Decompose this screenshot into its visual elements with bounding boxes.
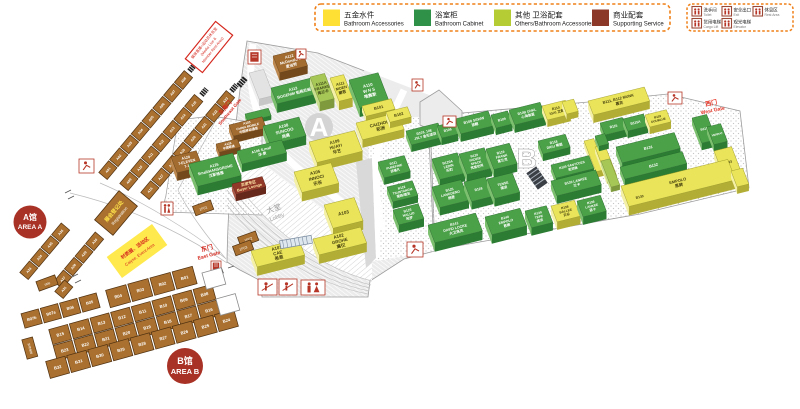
svg-text:A: A xyxy=(310,112,329,142)
svg-text:Cargo Lift: Cargo Lift xyxy=(704,25,719,29)
svg-text:Bathroom Accessories: Bathroom Accessories xyxy=(344,22,404,28)
svg-text:Bathroom Cabinet: Bathroom Cabinet xyxy=(435,22,484,28)
svg-text:AREA B: AREA B xyxy=(171,367,200,376)
svg-text:Others/Bathroom Accessories: Others/Bathroom Accessories xyxy=(515,22,594,28)
svg-text:商业配套: 商业配套 xyxy=(613,10,644,20)
svg-text:B馆: B馆 xyxy=(177,355,193,366)
svg-text:五金水件: 五金水件 xyxy=(344,10,375,20)
svg-text:A馆: A馆 xyxy=(23,212,37,222)
svg-text:Exit: Exit xyxy=(734,13,740,17)
svg-text:Toilet: Toilet xyxy=(704,13,712,17)
svg-text:Rest Area: Rest Area xyxy=(765,13,780,17)
svg-text:Elevator: Elevator xyxy=(734,25,747,29)
svg-text:Supporting Service: Supporting Service xyxy=(613,22,664,28)
svg-text:AREA A: AREA A xyxy=(18,224,43,231)
svg-text:浴室柜: 浴室柜 xyxy=(435,10,458,20)
svg-text:其他 卫浴配套: 其他 卫浴配套 xyxy=(515,10,563,20)
